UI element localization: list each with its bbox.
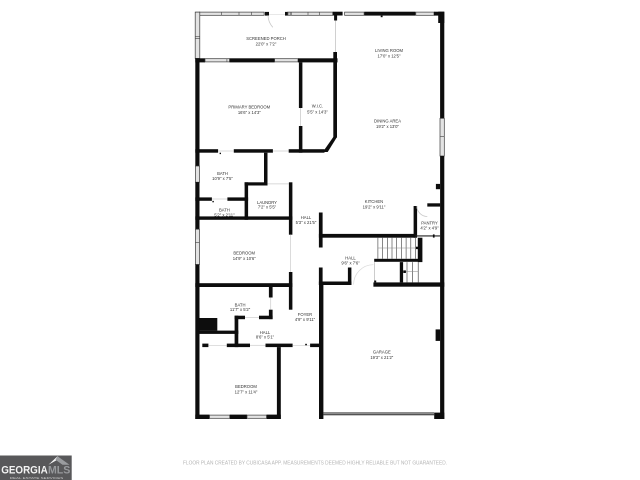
svg-text:W.I.C.: W.I.C.: [312, 104, 323, 109]
svg-text:FLOOR PLAN CREATED BY CUBICASA: FLOOR PLAN CREATED BY CUBICASA APP. MEAS…: [183, 461, 447, 467]
svg-text:4'2" x 4'9": 4'2" x 4'9": [420, 226, 439, 231]
svg-text:5'2" x 2'11": 5'2" x 2'11": [214, 213, 235, 218]
svg-text:BEDROOM: BEDROOM: [235, 384, 257, 389]
svg-text:REAL ESTATE SERVICES: REAL ESTATE SERVICES: [10, 476, 64, 480]
svg-text:7'2" x 5'5": 7'2" x 5'5": [258, 205, 277, 210]
svg-text:19'2" x 13'0": 19'2" x 13'0": [376, 124, 399, 129]
svg-text:SCREENED PORCH: SCREENED PORCH: [246, 36, 286, 41]
svg-text:KITCHEN: KITCHEN: [365, 199, 383, 204]
svg-text:5'3" x 21'5": 5'3" x 21'5": [296, 220, 317, 225]
svg-text:16'6" x 14'3": 16'6" x 14'3": [238, 110, 261, 115]
svg-text:9'6" x 7'6": 9'6" x 7'6": [341, 260, 360, 265]
svg-text:19'2" x 9'11": 19'2" x 9'11": [363, 205, 386, 210]
svg-text:11'7" x 5'2": 11'7" x 5'2": [230, 307, 251, 312]
svg-text:10'9" x 7'5": 10'9" x 7'5": [212, 176, 233, 181]
svg-text:12'7" x 11'4": 12'7" x 11'4": [235, 389, 258, 394]
svg-text:PRIMARY BEDROOM: PRIMARY BEDROOM: [228, 105, 270, 110]
svg-text:BEDROOM: BEDROOM: [233, 250, 255, 255]
svg-text:5'5" x 14'3": 5'5" x 14'3": [307, 109, 328, 114]
svg-text:DINING AREA: DINING AREA: [374, 118, 401, 123]
svg-text:LIVING ROOM: LIVING ROOM: [375, 48, 403, 53]
svg-text:22'0" x 7'2": 22'0" x 7'2": [256, 42, 277, 47]
svg-text:19'3" x 21'2": 19'3" x 21'2": [370, 355, 393, 360]
svg-text:GARAGE: GARAGE: [373, 350, 391, 355]
svg-text:MLS: MLS: [48, 465, 70, 477]
svg-text:GEORGIA: GEORGIA: [1, 465, 48, 477]
svg-text:14'9" x 10'6": 14'9" x 10'6": [233, 256, 256, 261]
svg-text:17'0" x 12'5": 17'0" x 12'5": [378, 54, 401, 59]
svg-text:4'9" x 9'11": 4'9" x 9'11": [295, 317, 316, 322]
svg-text:8'6" x 5'1": 8'6" x 5'1": [256, 335, 275, 340]
